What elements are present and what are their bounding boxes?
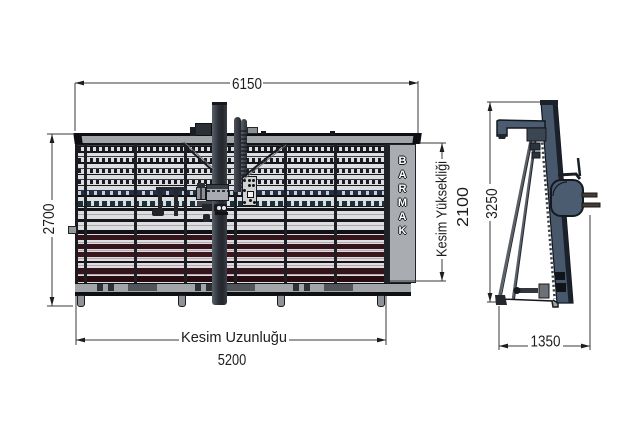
svg-text:5200: 5200 bbox=[218, 352, 247, 369]
svg-text:Kesim Uzunluğu: Kesim Uzunluğu bbox=[181, 329, 287, 346]
svg-text:1350: 1350 bbox=[531, 334, 561, 351]
svg-text:2700: 2700 bbox=[41, 203, 58, 234]
svg-text:Kesim Yüksekliği: Kesim Yüksekliği bbox=[434, 161, 451, 257]
svg-text:2100: 2100 bbox=[455, 187, 472, 227]
svg-text:3250: 3250 bbox=[484, 188, 501, 219]
svg-text:6150: 6150 bbox=[232, 76, 262, 93]
